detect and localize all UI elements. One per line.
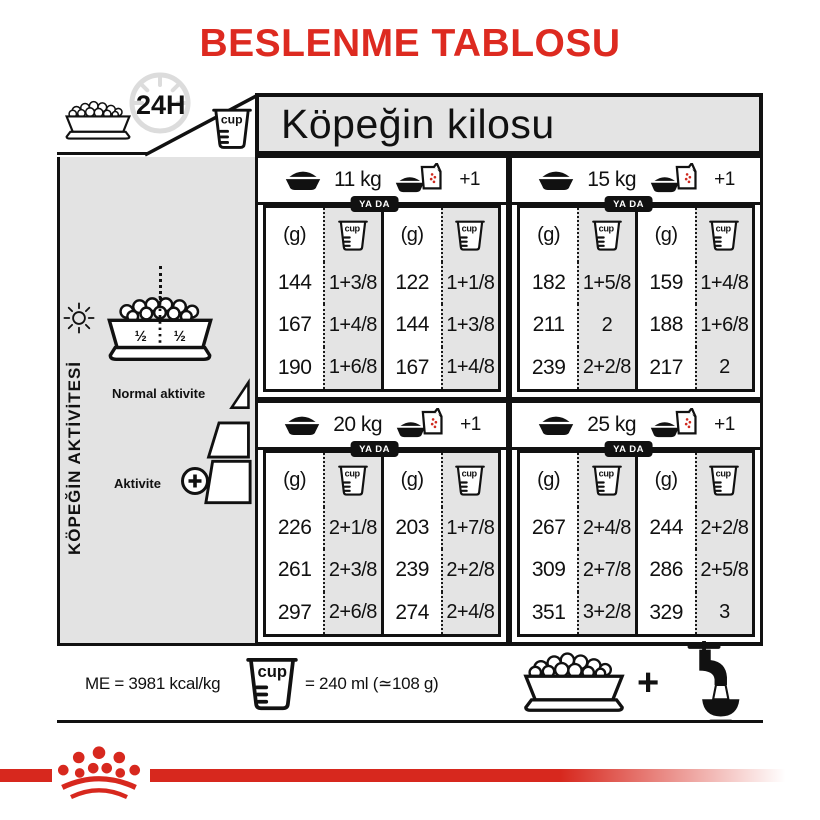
faucet-water-icon [666,641,744,727]
mixed-subtable: (g) cup 203 1+7/8 239 2+2/8 274 2+4/8 [381,450,502,637]
weight-section-header: 25 kg +1 YA DA [512,403,760,450]
cup-value: 1+4/8 [441,347,498,389]
section-body: (g) cup 182 1+5/8 211 2 239 2+2/8 (g) [512,205,760,397]
weight-label: 11 kg [334,168,381,192]
moon-icon [221,303,245,335]
weight-section: 20 kg +1 YA DA (g) cup [255,400,509,645]
grams-value: 217 [638,347,695,389]
grams-header: (g) [384,453,441,507]
mixed-subtable: (g) cup 122 1+1/8 144 1+3/8 167 1+4/8 [381,205,502,392]
cup-value: 1+3/8 [441,304,498,346]
feeding-table: 11 kg +1 YA DA (g) cup [255,155,763,645]
bowl-with-pouch-icon [394,408,448,442]
cup-header: cup [441,453,498,507]
grams-value: 244 [638,507,695,549]
grams-value: 239 [384,549,441,591]
or-badge: YA DA [604,196,653,212]
cup-header: cup [577,453,634,507]
svg-text:cup: cup [716,469,732,479]
mixed-subtable: (g) cup 244 2+2/8 286 2+5/8 329 3 [635,450,756,637]
activity-level-2-icon [205,421,252,459]
dry-food-bowl-icon [537,413,575,437]
dry-food-bowl-icon [284,168,322,192]
cup-header: cup [323,208,380,262]
cup-value: 3 [695,592,752,634]
cup-icon: cup [592,463,622,497]
grams-value: 190 [266,347,323,389]
cup-value: 1+4/8 [695,262,752,304]
grams-value: 122 [384,262,441,304]
cup-icon: cup [212,104,252,152]
grams-value: 144 [384,304,441,346]
red-stripe-right [150,769,812,782]
mixed-subtable: (g) cup 159 1+4/8 188 1+6/8 217 2 [635,205,756,392]
section-body: (g) cup 226 2+1/8 261 2+3/8 297 2+6/8 ( [258,450,506,642]
grams-value: 267 [520,507,577,549]
activity-level-1-icon [229,378,251,412]
cup-icon: cup [246,653,298,713]
cup-value: 3+2/8 [577,592,634,634]
plus-one-label: +1 [714,169,735,191]
cup-value: 1+1/8 [441,262,498,304]
grams-header: (g) [266,208,323,262]
weight-header-label: Köpeğin kilosu [259,101,555,148]
grams-value: 182 [520,262,577,304]
or-badge: YA DA [350,196,399,212]
plus-circle-icon [180,466,210,496]
cup-header: cup [695,208,752,262]
sun-icon [63,302,95,334]
grams-value: 167 [384,347,441,389]
plus-one-label: +1 [459,169,480,191]
sidebar-vertical-label: KÖPEĞİN AKTİVİTESİ [60,348,90,568]
grams-header: (g) [520,453,577,507]
weight-section: 15 kg +1 YA DA (g) cup [509,155,763,400]
bowl-with-pouch-icon [648,408,702,442]
weight-section: 25 kg +1 YA DA (g) cup [509,400,763,645]
page-title: BESLENME TABLOSU [0,22,820,66]
cup-value: 1+6/8 [695,304,752,346]
cup-icon: cup [592,218,622,252]
dry-subtable: (g) cup 182 1+5/8 211 2 239 2+2/8 [517,205,638,392]
cup-header: cup [323,453,380,507]
weight-section: 11 kg +1 YA DA (g) cup [255,155,509,400]
cup-equivalence-label: = 240 ml (≃108 g) [305,674,438,694]
svg-text:cup: cup [599,224,615,234]
crown-logo [49,744,149,800]
half-half-bowl-icon: ½ ½ [99,294,221,370]
grams-header: (g) [384,208,441,262]
cup-value: 2+2/8 [441,549,498,591]
cup-value: 1+6/8 [323,347,380,389]
grams-value: 239 [520,347,577,389]
grams-value: 167 [266,304,323,346]
section-body: (g) cup 267 2+4/8 309 2+7/8 351 3+2/8 ( [512,450,760,642]
grams-value: 351 [520,592,577,634]
svg-text:cup: cup [462,469,478,479]
section-body: (g) cup 144 1+3/8 167 1+4/8 190 1+6/8 ( [258,205,506,397]
grams-value: 144 [266,262,323,304]
me-kcal-label: ME = 3981 kcal/kg [85,674,220,694]
24h-label: 24H [136,90,186,121]
svg-text:cup: cup [345,469,361,479]
grams-value: 274 [384,592,441,634]
cup-icon: cup [455,463,485,497]
cup-icon: cup [338,463,368,497]
cup-value: 2 [695,347,752,389]
cup-value: 1+3/8 [323,262,380,304]
plus-one-label: +1 [460,414,481,436]
bowl-with-pouch-icon [648,163,702,197]
red-stripe-left [0,769,52,782]
dry-subtable: (g) cup 144 1+3/8 167 1+4/8 190 1+6/8 [263,205,384,392]
cup-header: cup [695,453,752,507]
cup-icon: cup [338,218,368,252]
kibble-bowl-icon [512,647,636,715]
grams-value: 226 [266,507,323,549]
cup-value: 2+3/8 [323,549,380,591]
svg-text:cup: cup [345,224,361,234]
cup-value: 2+4/8 [441,592,498,634]
activity-level-3-icon [203,459,253,506]
grams-value: 261 [266,549,323,591]
cup-value: 1+4/8 [323,304,380,346]
svg-text:cup: cup [462,224,478,234]
normal-activity-label: Normal aktivite [112,386,224,401]
weight-section-header: 20 kg +1 YA DA [258,403,506,450]
bowl-with-pouch-icon [393,163,447,197]
weight-label: 15 kg [587,168,636,192]
dry-subtable: (g) cup 226 2+1/8 261 2+3/8 297 2+6/8 [263,450,384,637]
cup-icon: cup [709,463,739,497]
cup-value: 2+2/8 [695,507,752,549]
dry-subtable: (g) cup 267 2+4/8 309 2+7/8 351 3+2/8 [517,450,638,637]
dry-food-bowl-icon [283,413,321,437]
cup-header: cup [577,208,634,262]
grams-header: (g) [266,453,323,507]
cup-value: 2+5/8 [695,549,752,591]
weight-section-header: 15 kg +1 YA DA [512,158,760,205]
cup-icon: cup [455,218,485,252]
grams-header: (g) [638,453,695,507]
weight-label: 20 kg [333,413,382,437]
cup-value: 2+4/8 [577,507,634,549]
grams-value: 309 [520,549,577,591]
or-badge: YA DA [604,441,653,457]
svg-text:½: ½ [174,329,186,345]
cup-value: 2+6/8 [323,592,380,634]
activity-label: Aktivite [114,476,161,491]
cup-icon: cup [709,218,739,252]
weight-section-header: 11 kg +1 YA DA [258,158,506,205]
cup-value: 2+2/8 [577,347,634,389]
dry-food-bowl-icon [537,168,575,192]
svg-text:cup: cup [716,224,732,234]
plus-one-label: +1 [714,414,735,436]
grams-value: 188 [638,304,695,346]
cup-value: 2+1/8 [323,507,380,549]
plus-label: + [637,662,659,705]
svg-text:cup: cup [221,113,243,127]
cup-value: 1+5/8 [577,262,634,304]
svg-text:cup: cup [258,662,288,681]
grams-value: 329 [638,592,695,634]
grams-value: 203 [384,507,441,549]
svg-text:cup: cup [599,469,615,479]
cup-header: cup [441,208,498,262]
weight-header-band: Köpeğin kilosu [255,93,763,155]
grams-value: 286 [638,549,695,591]
grams-value: 297 [266,592,323,634]
svg-text:½: ½ [135,329,147,345]
cup-value: 1+7/8 [441,507,498,549]
grams-value: 159 [638,262,695,304]
weight-label: 25 kg [587,413,636,437]
cup-value: 2+7/8 [577,549,634,591]
cup-value: 2 [577,304,634,346]
grams-value: 211 [520,304,577,346]
or-badge: YA DA [350,441,399,457]
grams-header: (g) [520,208,577,262]
grams-header: (g) [638,208,695,262]
